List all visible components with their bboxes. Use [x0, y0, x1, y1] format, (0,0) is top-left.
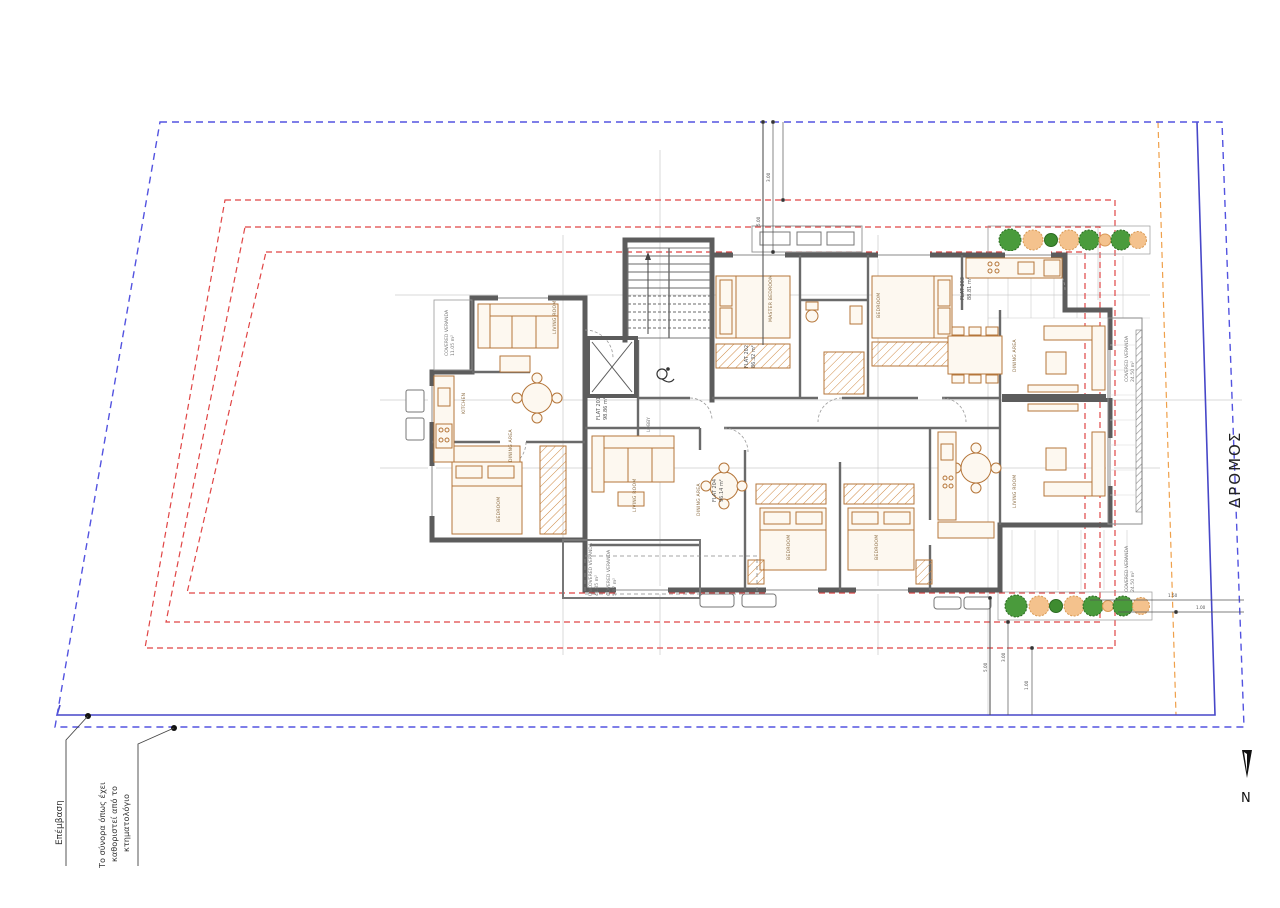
label-living-3: LIVING ROOM: [1012, 475, 1018, 508]
site-plan-drawing: LIVING ROOM KITCHEN DINING AREA BEDROOM …: [0, 0, 1280, 908]
label-veranda-uncovered: UNCOVERED VERANDA: [588, 542, 594, 596]
wheelchair-icon: [657, 367, 674, 382]
boundary-note-line2: καθοριστεί από το: [109, 786, 119, 862]
boundary-note-line3: κτηματολόγιο: [121, 794, 131, 852]
label-bedroom-4: BEDROOM: [874, 535, 880, 560]
bed: [848, 508, 914, 570]
bed: [716, 276, 790, 338]
shrub-icon: [1099, 234, 1111, 246]
label-flat-204-area: 96.14 m²: [719, 479, 725, 502]
bed: [872, 276, 952, 338]
bed: [452, 462, 522, 534]
entrance-canopy: [752, 226, 862, 252]
paving-lines: [988, 256, 1150, 590]
label-veranda-right-bottom: COVERED VERANDA: [1124, 545, 1130, 592]
label-master-bedroom: MASTER BEDROOM: [768, 275, 774, 322]
balcony-top-left: [434, 300, 472, 370]
bathroom-fixtures: [748, 560, 764, 584]
kitchen-counter: [938, 432, 994, 538]
tree-icon: [1113, 596, 1133, 616]
label-living-room-2: LIVING ROOM: [632, 479, 638, 512]
tree-icon: [1130, 232, 1147, 249]
staircase: [628, 248, 710, 338]
dim-bottom-100: 1.00: [1024, 680, 1029, 690]
sofa: [478, 304, 558, 372]
wardrobe: [872, 342, 952, 366]
label-flat-202-area: 86.32 m²: [751, 345, 757, 368]
dim-top-500: 5.00: [756, 216, 761, 226]
label-bedroom-2: BEDROOM: [876, 293, 882, 318]
north-arrow: N: [1241, 750, 1252, 806]
dining-table: [948, 327, 1002, 383]
label-bedroom-3: BEDROOM: [786, 535, 792, 560]
label-veranda-bottom-area: 5.87 m²: [612, 578, 618, 596]
wardrobe: [540, 446, 566, 534]
tv-unit: [1028, 385, 1078, 392]
tree-icon: [1111, 230, 1131, 250]
dim-right-150: 1.50: [1168, 593, 1178, 598]
dim-top-300: 3.00: [766, 172, 771, 182]
wardrobe: [844, 484, 914, 504]
wardrobe: [756, 484, 826, 504]
tree-icon: [1079, 230, 1099, 250]
tree-icon: [1083, 596, 1103, 616]
label-flat-203-area: 88.81 m²: [967, 277, 973, 300]
label-flat-204: FLAT 204: [712, 479, 718, 502]
tree-icon: [1059, 230, 1079, 250]
tv-wall: [1002, 394, 1108, 402]
sofa: [1044, 432, 1105, 496]
boundary-annotations: Επέμβαση Το σύνορα όπως έχει καθοριστεί …: [54, 713, 177, 869]
label-flat-203: FLAT 203: [960, 277, 966, 300]
dimension-lines: [761, 120, 1244, 715]
shrub-icon: [1045, 234, 1058, 247]
shrub-icon: [1103, 601, 1114, 612]
dining-table: [512, 373, 562, 423]
bed: [760, 508, 826, 570]
dim-right-100: 1.00: [1196, 605, 1206, 610]
tree-icon: [1005, 595, 1027, 617]
road-label: ΔΡΟΜΟΣ: [1226, 431, 1244, 508]
elevator: [588, 338, 636, 396]
tree-icon: [1023, 230, 1043, 250]
tree-icon: [1064, 596, 1084, 616]
north-label: N: [1241, 791, 1251, 806]
road-annotation: ΔΡΟΜΟΣ: [1226, 431, 1244, 508]
label-veranda-right-bottom-area: 24.50 m²: [1130, 571, 1136, 592]
building-plan: [406, 226, 1142, 609]
tv-unit: [1028, 404, 1078, 411]
kitchen-counter: [966, 258, 1062, 278]
tree-strip-top: [988, 226, 1150, 254]
label-kitchen: KITCHEN: [461, 393, 467, 414]
site-plan-page: LIVING ROOM KITCHEN DINING AREA BEDROOM …: [0, 0, 1280, 908]
intervention-label: Επέμβαση: [54, 800, 65, 845]
label-lobby: LOBBY: [646, 417, 652, 432]
label-dining-2: DINING AREA: [696, 483, 702, 516]
label-balcony-area: 11.05 m²: [450, 335, 456, 356]
bathroom-fixtures: [916, 560, 932, 584]
label-veranda-uncovered-area: 41.85 m²: [594, 575, 600, 596]
label-veranda-bottom: COVERED VERANDA: [606, 549, 612, 596]
label-flat-202: FLAT 202: [744, 345, 750, 368]
label-flat-201: FLAT 201: [596, 397, 602, 420]
green-zone-line: [1158, 122, 1176, 715]
boundary-solid-line: [57, 122, 1215, 715]
dining-table: [951, 443, 1001, 493]
tree-strip-bottom: [998, 592, 1152, 620]
bathroom-fixtures: [806, 302, 864, 394]
label-living-room: LIVING ROOM: [552, 301, 558, 334]
boundary-note-line1: Το σύνορα όπως έχει: [97, 782, 107, 869]
label-flat-201-area: 98.86 m²: [603, 397, 609, 420]
tree-icon: [1029, 596, 1049, 616]
tree-icon: [999, 229, 1021, 251]
shrub-icon: [1050, 600, 1063, 613]
kitchen-counter: [434, 376, 520, 462]
label-veranda-right-top: COVERED VERANDA: [1124, 335, 1130, 382]
label-dining-3: DINING AREA: [1012, 339, 1018, 372]
label-bedroom: BEDROOM: [496, 497, 502, 522]
label-balcony: COVERED VERANDA: [444, 309, 450, 356]
dim-bottom-500: 5.00: [983, 662, 988, 672]
sofa: [1044, 326, 1105, 390]
dim-bottom-300: 3.00: [1001, 652, 1006, 662]
label-dining: DINING AREA: [508, 429, 514, 462]
label-veranda-right-top-area: 24.50 m²: [1130, 361, 1136, 382]
